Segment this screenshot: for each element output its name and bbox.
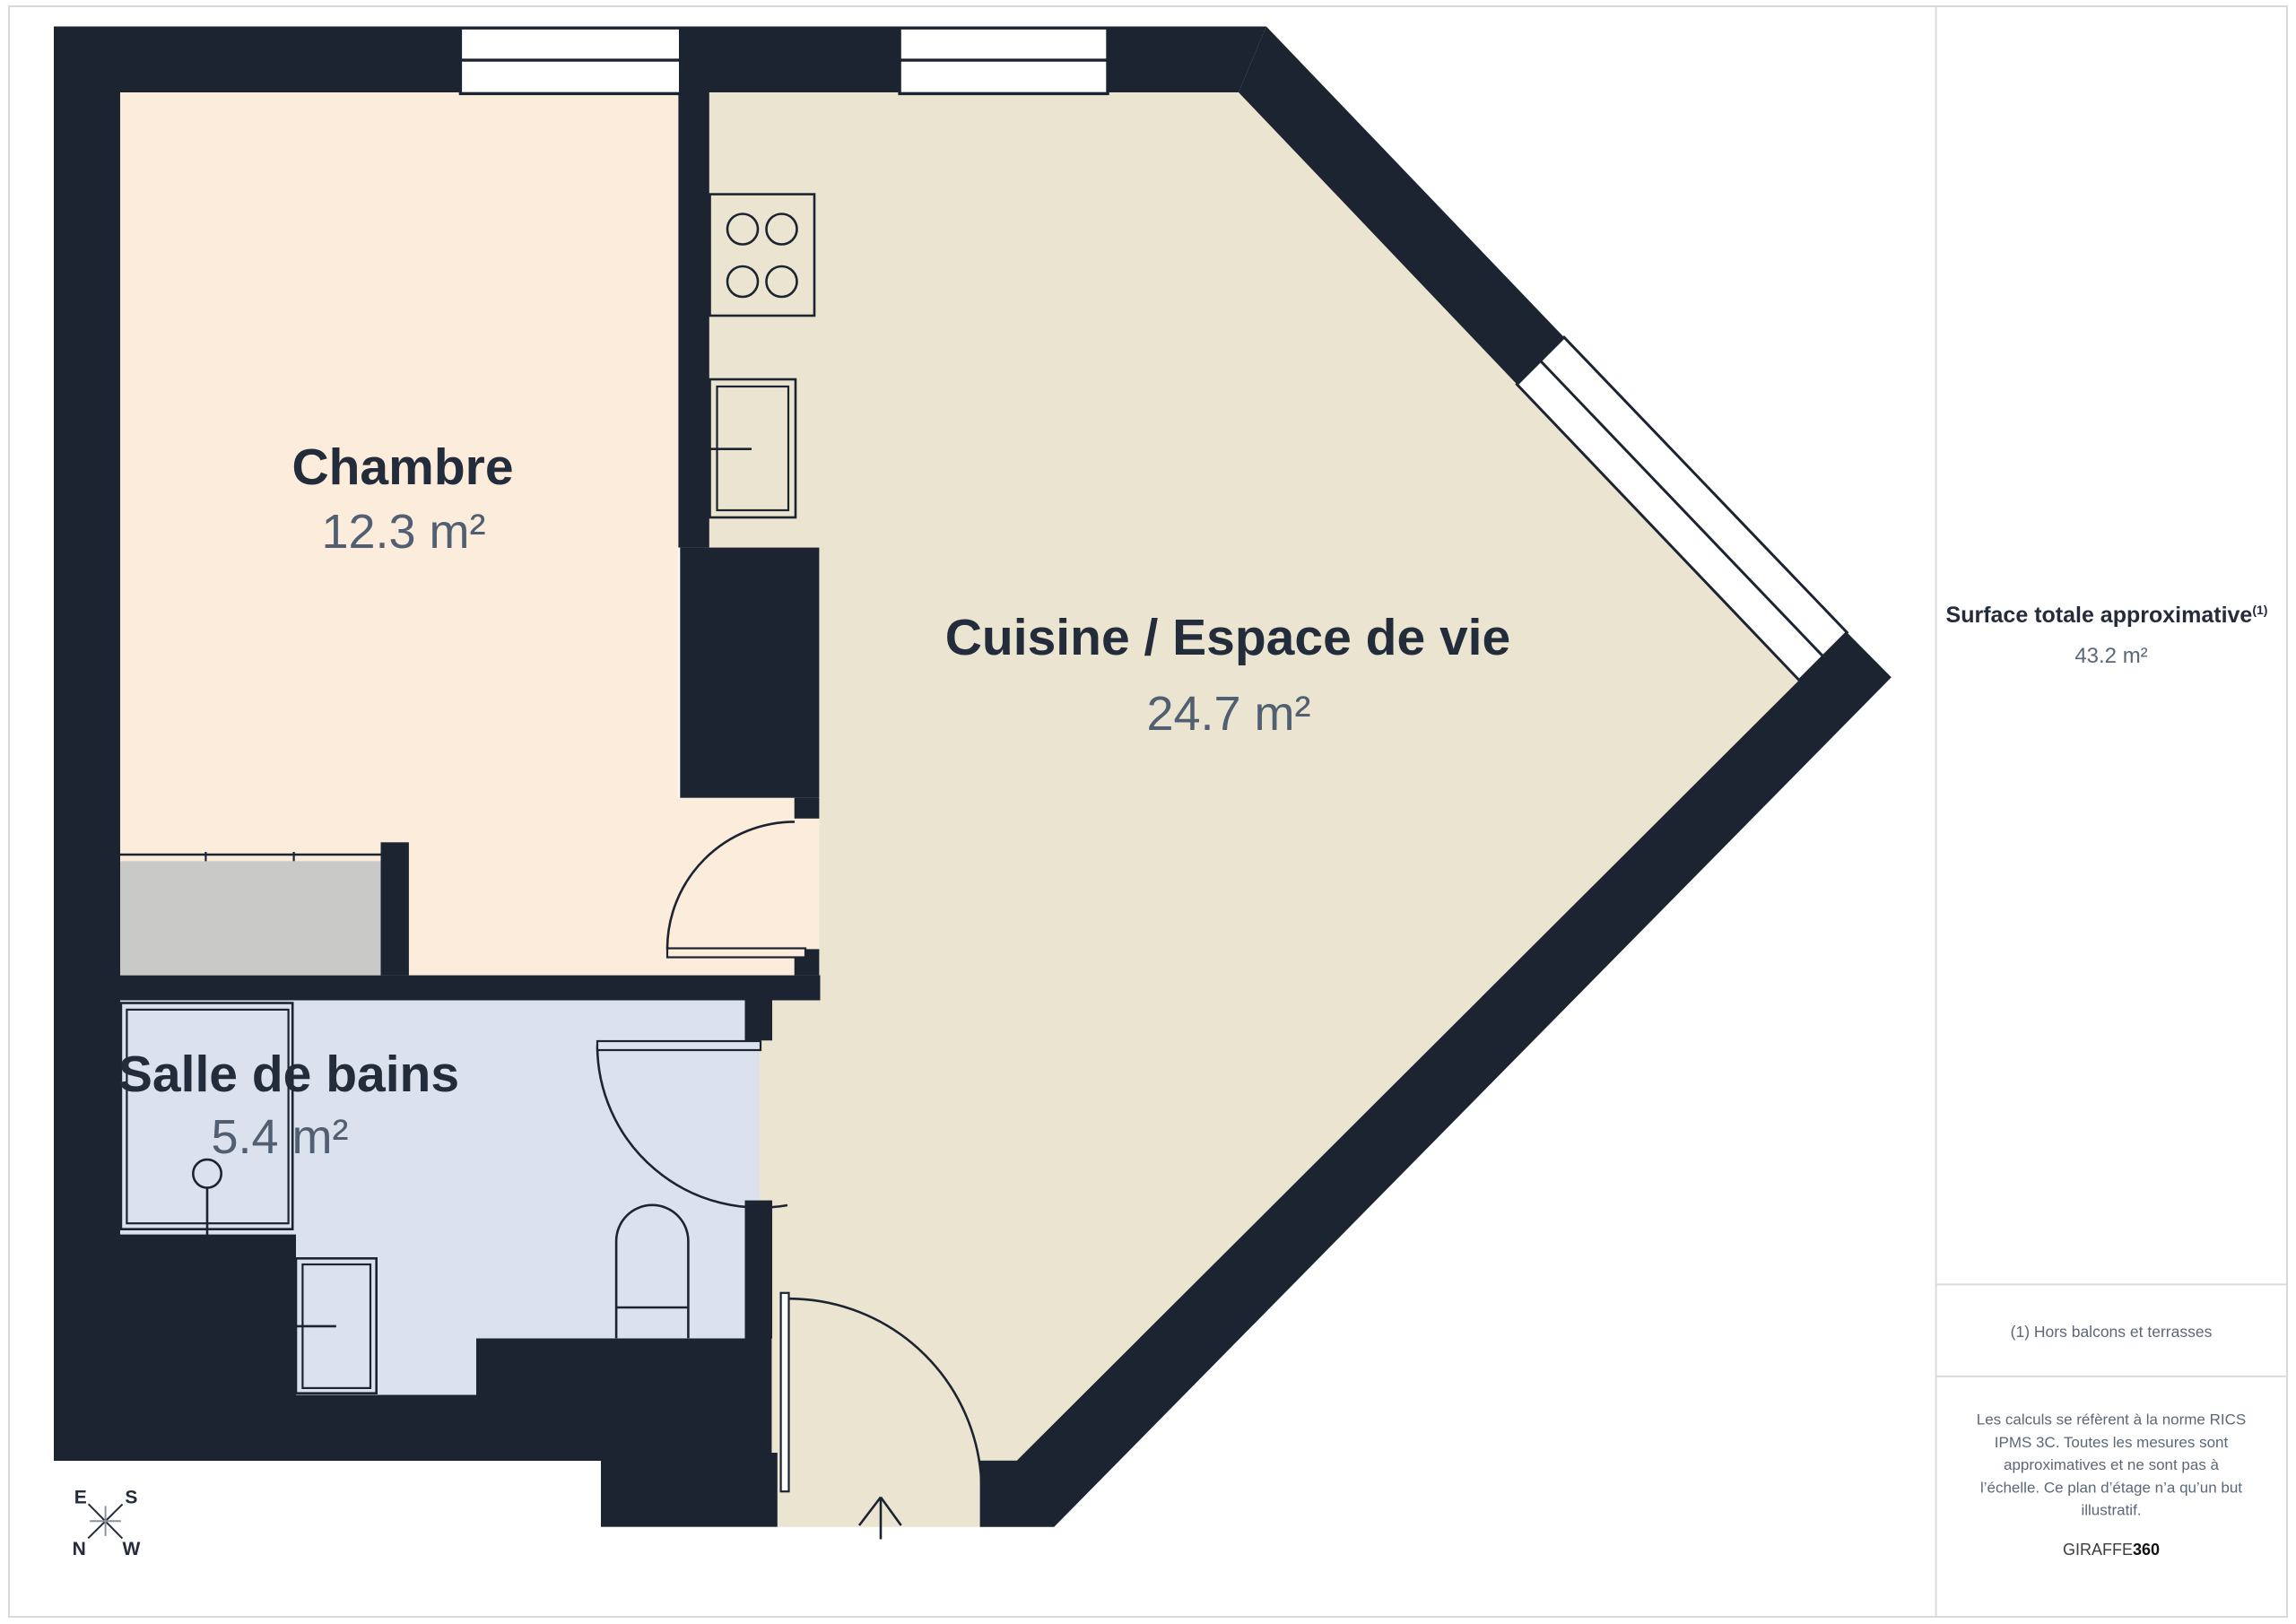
svg-text:illustratif.: illustratif. [2081, 1502, 2141, 1519]
svg-text:Chambre: Chambre [291, 439, 513, 496]
svg-text:approximatives et ne sont pas: approximatives et ne sont pas à [2004, 1456, 2220, 1473]
svg-text:IPMS 3C. Toutes les mesures so: IPMS 3C. Toutes les mesures sont [1995, 1434, 2229, 1451]
svg-text:Cuisine / Espace de vie: Cuisine / Espace de vie [945, 609, 1510, 666]
svg-text:Surface totale approximative(1: Surface totale approximative(1) [1946, 603, 2268, 628]
svg-text:(1) Hors balcons et terrasses: (1) Hors balcons et terrasses [2011, 1323, 2213, 1341]
svg-text:l’échelle. Ce plan d’étage n’a: l’échelle. Ce plan d’étage n’a qu’un but [1980, 1479, 2242, 1496]
svg-text:S: S [125, 1487, 137, 1507]
svg-text:5.4 m²: 5.4 m² [211, 1110, 348, 1164]
svg-text:W: W [122, 1539, 140, 1559]
svg-text:GIRAFFE360: GIRAFFE360 [2063, 1541, 2160, 1559]
svg-text:Salle de bains: Salle de bains [118, 1046, 459, 1103]
svg-text:43.2 m²: 43.2 m² [2074, 644, 2147, 668]
svg-text:E: E [74, 1487, 87, 1507]
svg-text:Les calculs se réfèrent à la n: Les calculs se réfèrent à la norme RICS [1977, 1411, 2246, 1429]
svg-text:24.7 m²: 24.7 m² [1146, 687, 1310, 741]
svg-text:N: N [73, 1539, 86, 1559]
svg-text:12.3 m²: 12.3 m² [321, 505, 485, 559]
